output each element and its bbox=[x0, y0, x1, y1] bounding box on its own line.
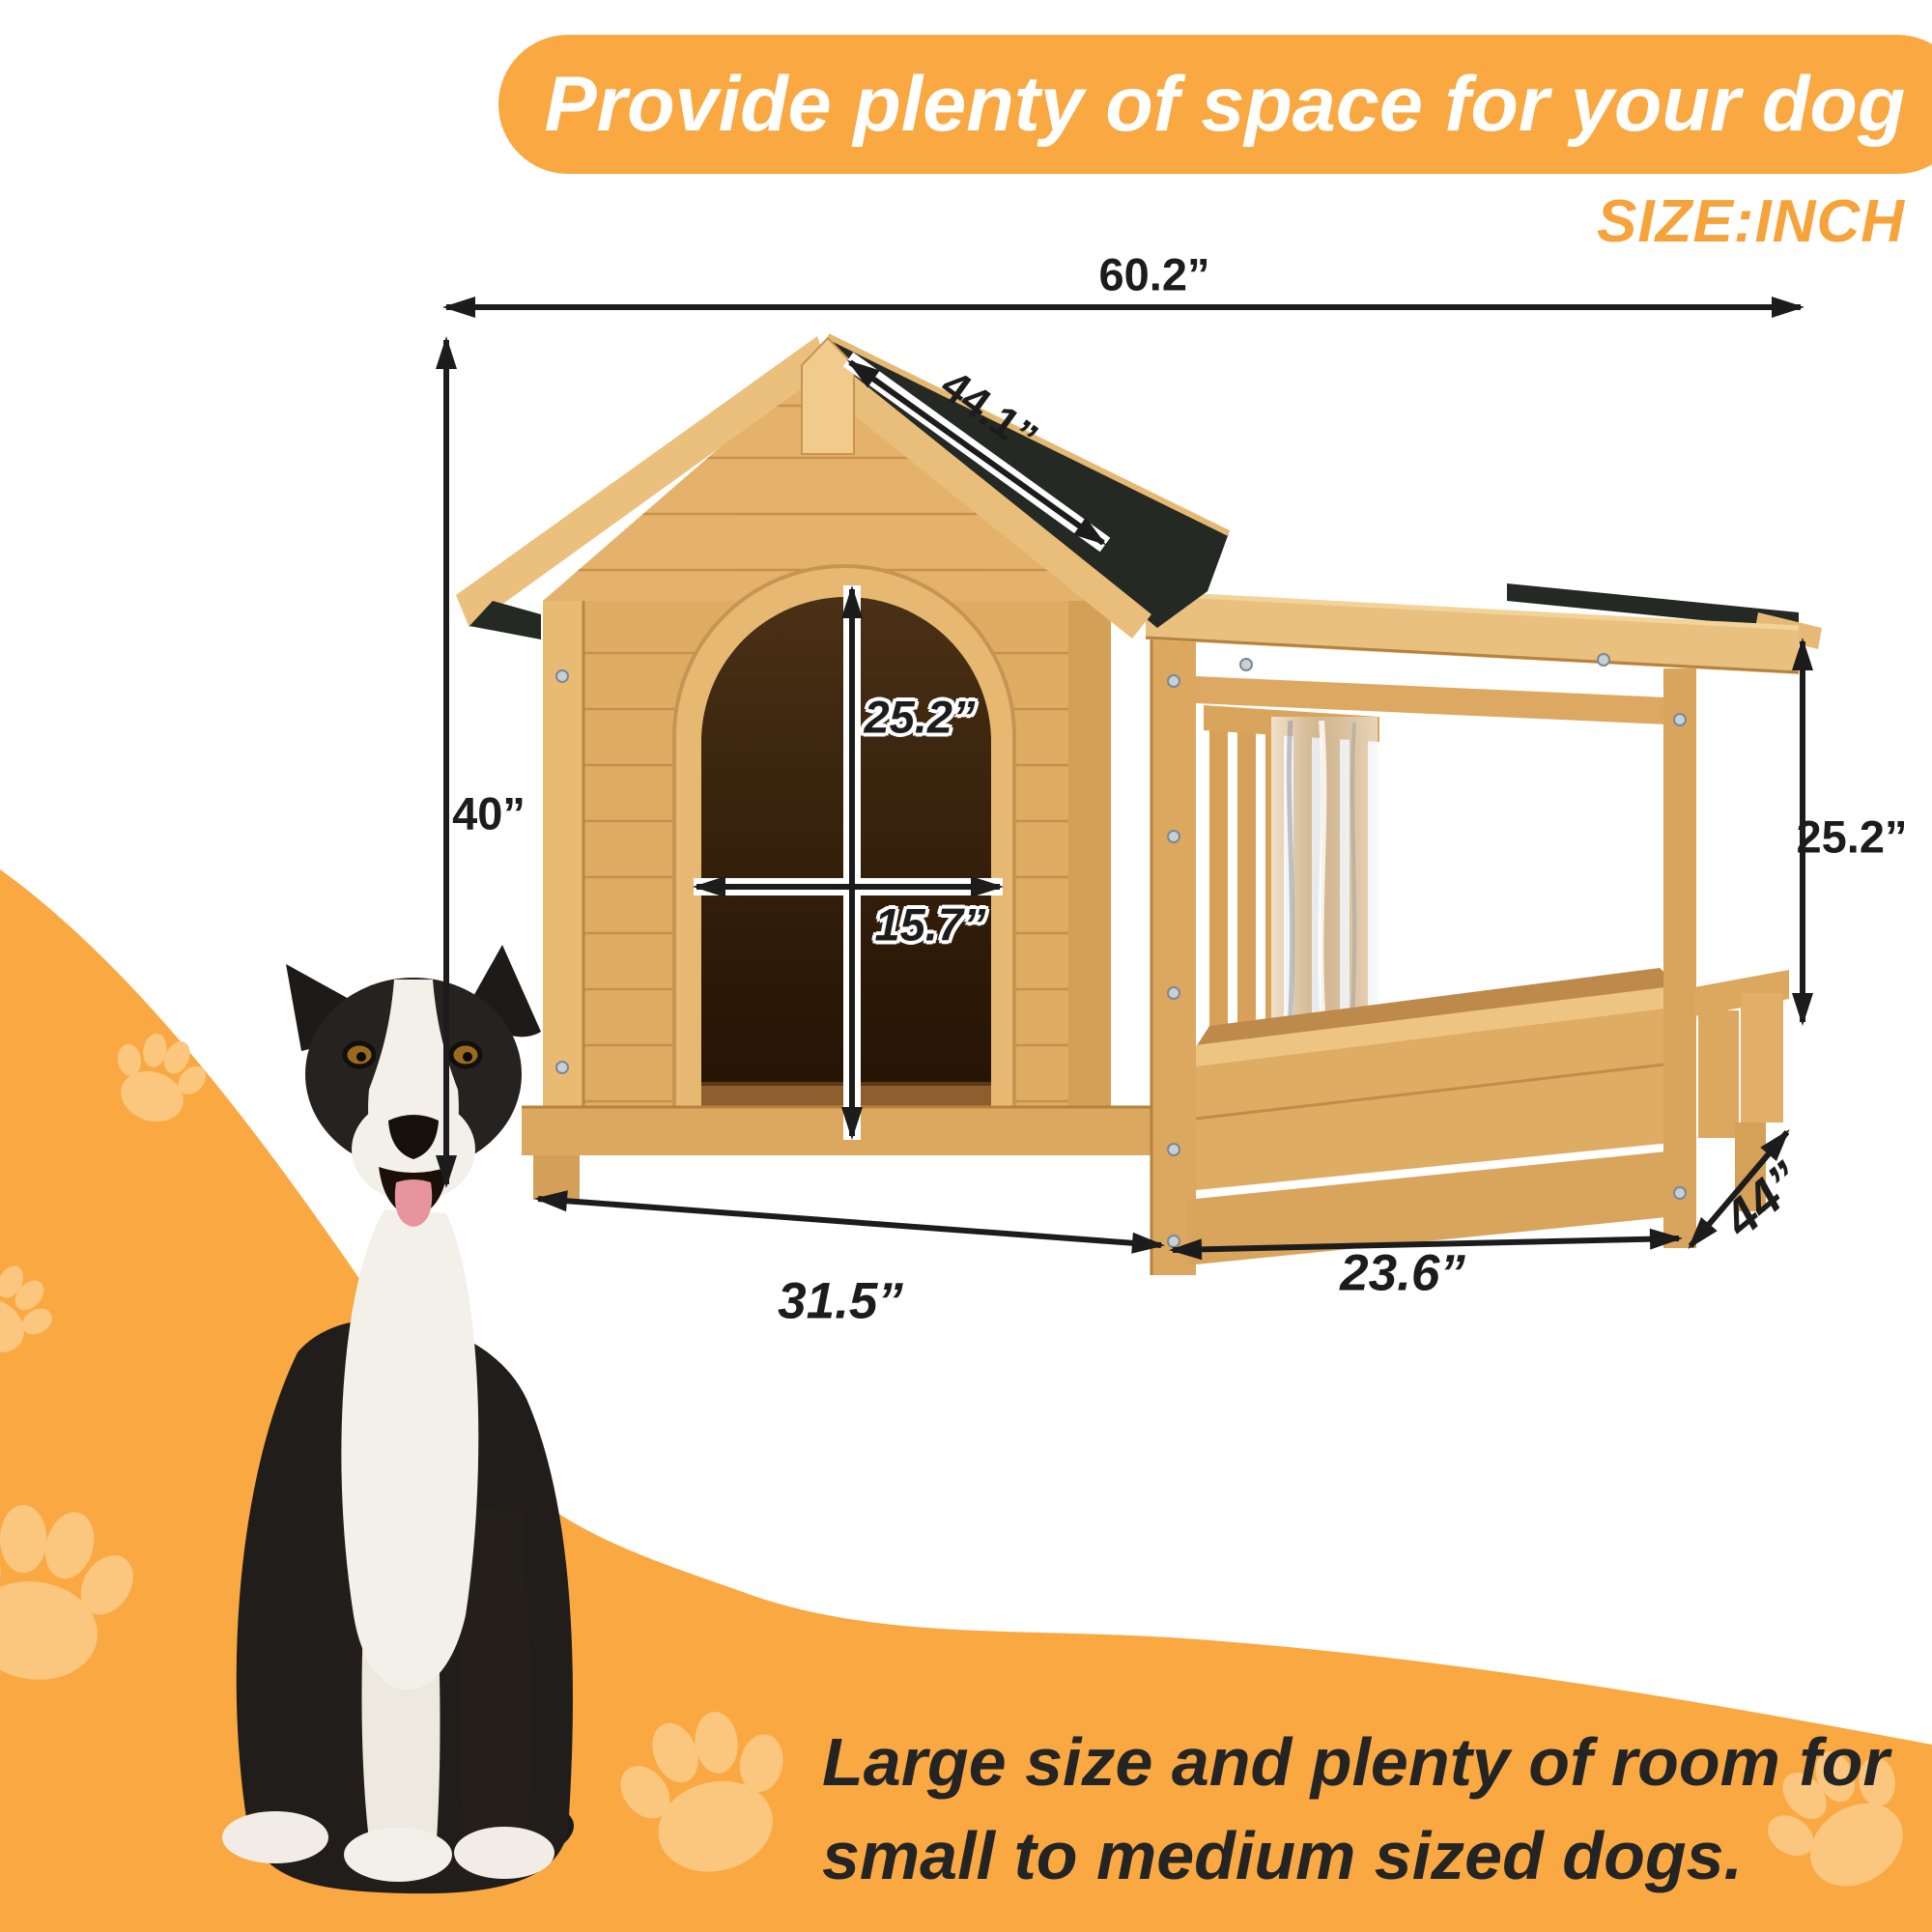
house-foot bbox=[533, 1155, 580, 1200]
caption: Large size and plenty of room for small … bbox=[822, 1716, 1889, 1903]
dog-front-paw-left bbox=[344, 1828, 452, 1882]
plastic-curtain bbox=[1271, 717, 1378, 1057]
arrow-house-base bbox=[538, 1199, 1161, 1245]
dim-label-porch-base-width: 23.6” bbox=[1340, 1244, 1465, 1303]
page-title: Provide plenty of space for your dog bbox=[545, 60, 1906, 150]
junction-post bbox=[1151, 587, 1196, 1275]
dog-photo bbox=[222, 945, 580, 1902]
house-base-rail bbox=[522, 1107, 1155, 1155]
dog-hind-paw bbox=[222, 1811, 328, 1863]
title-banner: Provide plenty of space for your dog bbox=[498, 35, 1932, 174]
porch bbox=[1146, 583, 1822, 1265]
product-dimension-illustration bbox=[0, 0, 1932, 1932]
dim-label-door-height: 25.2” bbox=[865, 691, 976, 744]
dim-label-total-height: 40” bbox=[452, 787, 526, 840]
dog-house-illustration bbox=[456, 336, 1822, 1275]
dim-label-door-width: 15.7” bbox=[875, 898, 986, 952]
dim-label-total-width: 60.2” bbox=[1099, 248, 1210, 301]
caption-line-1: Large size and plenty of room for bbox=[822, 1716, 1889, 1809]
dim-label-house-base-width: 31.5” bbox=[778, 1272, 903, 1331]
dog-front-paw-right bbox=[454, 1827, 554, 1879]
size-unit-note: SIZE:INCH bbox=[1597, 187, 1905, 256]
dim-label-porch-height: 25.2” bbox=[1797, 810, 1908, 864]
caption-line-2: small to medium sized dogs. bbox=[822, 1809, 1889, 1903]
porch-post bbox=[1663, 668, 1696, 1248]
dog-chest bbox=[341, 1209, 478, 1690]
